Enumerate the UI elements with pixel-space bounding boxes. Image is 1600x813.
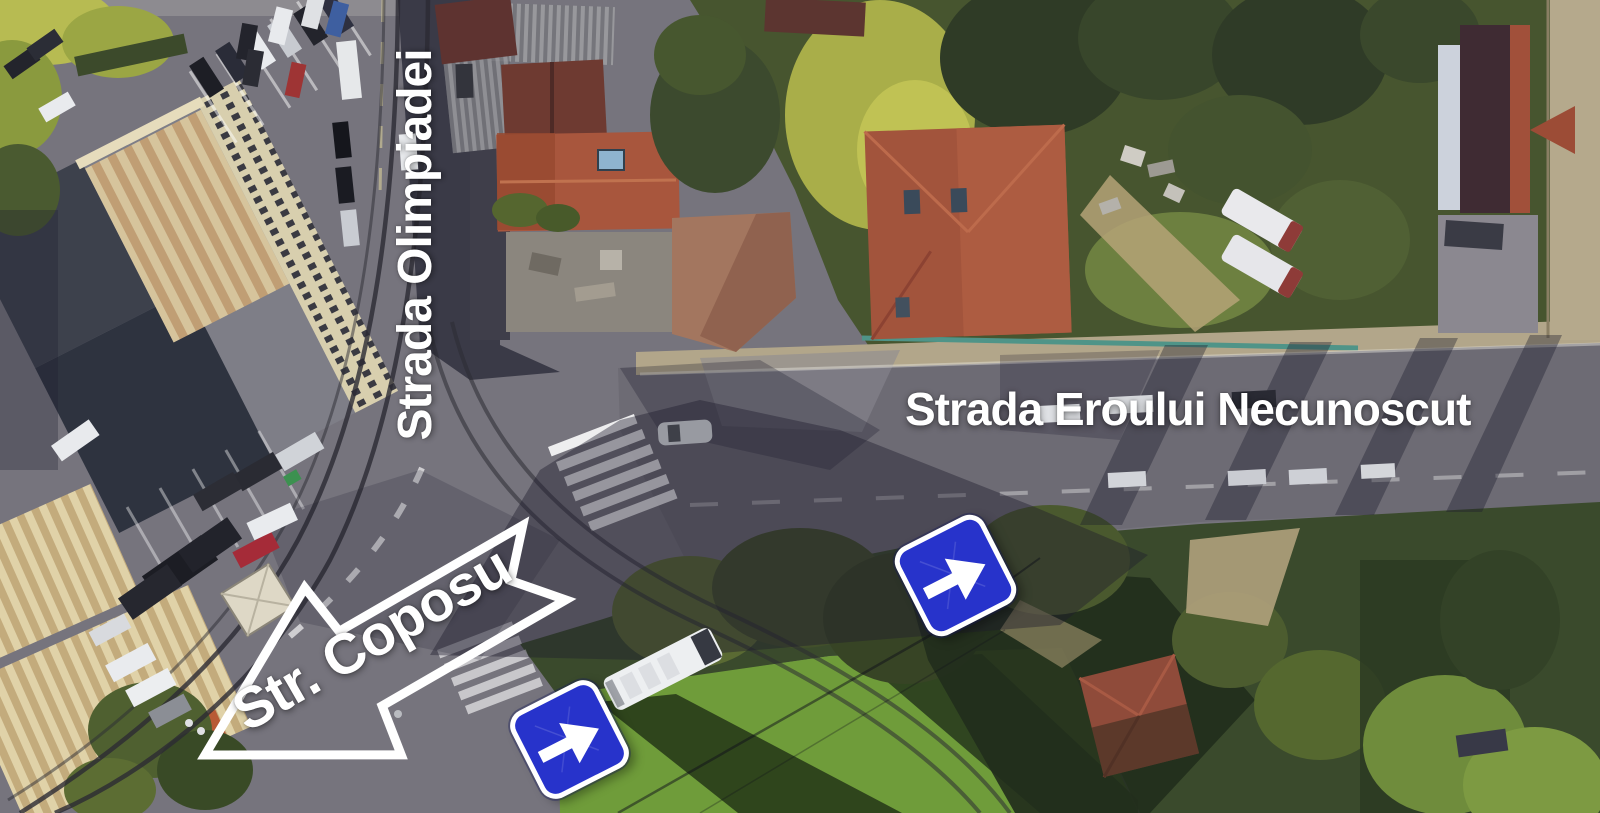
- skylight: [598, 150, 624, 170]
- aerial-map-screenshot: Strada Olimpiadei Strada Eroului Necunos…: [0, 0, 1600, 813]
- rubble-yard: [506, 232, 676, 332]
- aerial-photo-layer: [0, 0, 1600, 813]
- road-right-edge: [1550, 0, 1600, 340]
- house-main-red-roof: [865, 125, 1072, 340]
- car-intersection: [657, 419, 712, 446]
- one-way-arrow-icon: [518, 688, 621, 791]
